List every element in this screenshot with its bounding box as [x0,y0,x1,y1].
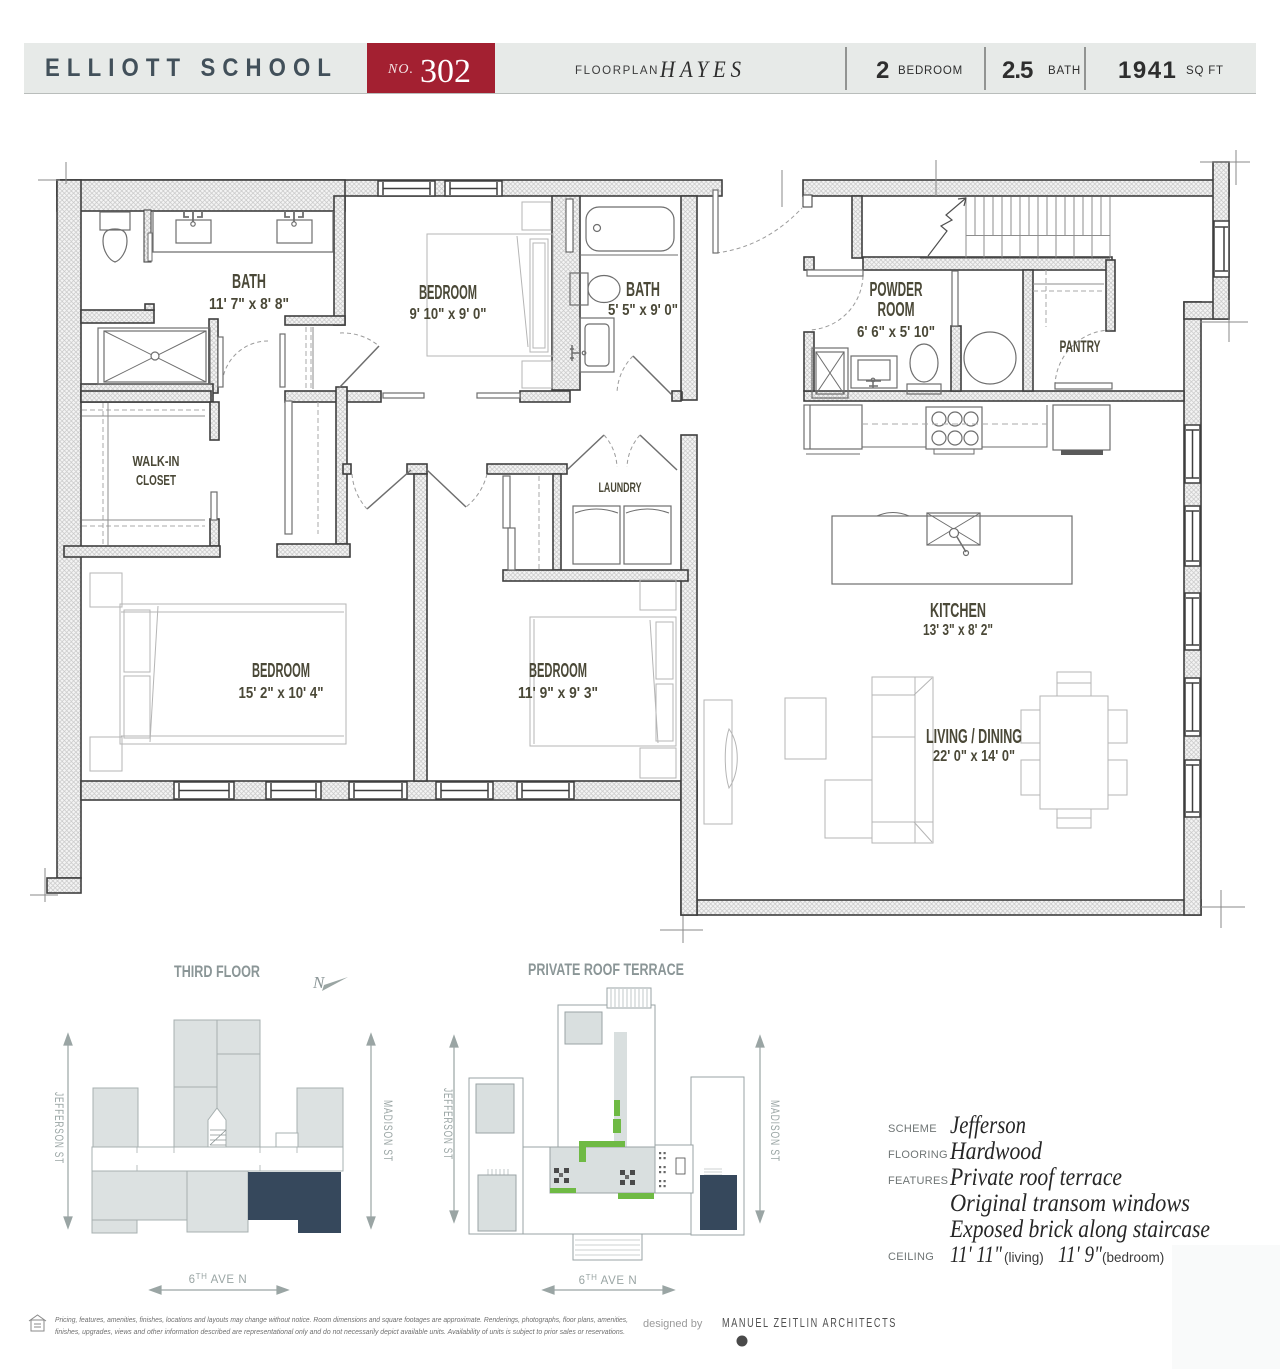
svg-text:NO.: NO. [387,62,414,77]
svg-text:LIVING / DINING: LIVING / DINING [926,726,1022,748]
svg-text:KITCHEN: KITCHEN [930,600,986,622]
svg-text:13' 3" x 8' 2": 13' 3" x 8' 2" [923,622,993,639]
svg-text:JEFFERSON ST: JEFFERSON ST [441,1088,455,1160]
svg-text:2.5: 2.5 [1002,57,1033,84]
svg-text:SCHEME: SCHEME [888,1123,937,1135]
svg-text:BEDROOM: BEDROOM [252,660,310,682]
svg-text:Private roof terrace: Private roof terrace [949,1164,1122,1191]
svg-text:(bedroom): (bedroom) [1102,1250,1164,1265]
svg-text:SQ FT: SQ FT [1186,65,1224,77]
svg-text:CEILING: CEILING [888,1251,934,1263]
svg-text:PANTRY: PANTRY [1060,337,1101,356]
svg-text:(living): (living) [1004,1250,1044,1265]
svg-text:11' 7" x 8' 8": 11' 7" x 8' 8" [209,296,289,313]
svg-text:MADISON ST: MADISON ST [768,1100,782,1162]
svg-text:BATH: BATH [626,279,660,301]
svg-text:finishes, upgrades, views and: finishes, upgrades, views and other info… [55,1327,625,1336]
svg-text:BATH: BATH [232,271,266,293]
svg-text:HAYES: HAYES [659,57,746,82]
svg-text:5' 5" x 9' 0": 5' 5" x 9' 0" [608,302,678,319]
svg-text:WALK-IN: WALK-IN [133,453,180,470]
svg-text:FEATURES: FEATURES [888,1175,948,1187]
svg-text:MADISON ST: MADISON ST [381,1100,395,1162]
svg-text:11' 9": 11' 9" [1058,1242,1102,1267]
svg-text:22' 0" x 14' 0": 22' 0" x 14' 0" [933,748,1015,765]
svg-text:2: 2 [876,57,889,84]
svg-text:Pricing, features, amenities,: Pricing, features, amenities, finishes, … [55,1315,628,1324]
svg-text:302: 302 [420,53,471,90]
svg-text:THIRD FLOOR: THIRD FLOOR [174,962,260,981]
svg-text:BATH: BATH [1048,65,1081,77]
svg-text:ELLIOTT SCHOOL: ELLIOTT SCHOOL [45,54,338,82]
svg-text:LAUNDRY: LAUNDRY [599,479,642,495]
svg-text:FLOORPLAN: FLOORPLAN [575,65,659,77]
svg-text:PRIVATE ROOF TERRACE: PRIVATE ROOF TERRACE [528,960,684,979]
svg-text:11' 11": 11' 11" [950,1242,1002,1267]
svg-text:MANUEL ZEITLIN ARCHITECTS: MANUEL ZEITLIN ARCHITECTS [722,1316,897,1330]
svg-text:11' 9" x 9' 3": 11' 9" x 9' 3" [518,685,598,702]
svg-text:designed by: designed by [643,1318,703,1330]
svg-text:15' 2" x 10' 4": 15' 2" x 10' 4" [239,685,324,702]
svg-text:Jefferson: Jefferson [950,1112,1026,1139]
svg-text:Hardwood: Hardwood [949,1138,1042,1165]
svg-text:Exposed brick along staircase: Exposed brick along staircase [949,1216,1210,1243]
svg-text:BEDROOM: BEDROOM [898,65,963,77]
svg-text:1941: 1941 [1118,57,1177,84]
svg-text:6' 6" x 5' 10": 6' 6" x 5' 10" [857,324,935,341]
svg-text:ROOM: ROOM [878,299,915,321]
svg-text:JEFFERSON ST: JEFFERSON ST [52,1092,66,1164]
svg-text:FLOORING: FLOORING [888,1149,948,1161]
svg-text:BEDROOM: BEDROOM [419,282,477,304]
svg-text:BEDROOM: BEDROOM [529,660,587,682]
svg-text:Original transom windows: Original transom windows [950,1190,1190,1217]
svg-text:CLOSET: CLOSET [136,472,176,489]
svg-text:9' 10" x 9' 0": 9' 10" x 9' 0" [410,306,487,323]
svg-text:POWDER: POWDER [870,279,923,301]
